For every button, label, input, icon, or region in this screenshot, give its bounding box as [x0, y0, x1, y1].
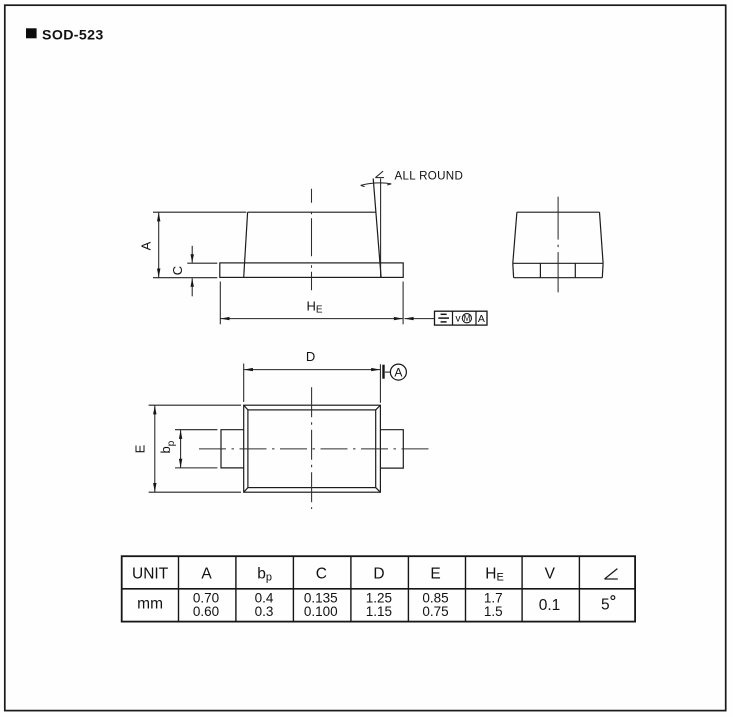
svg-text:0.100: 0.100 [304, 604, 338, 619]
svg-text:A: A [478, 313, 485, 325]
svg-text:A: A [394, 365, 402, 379]
svg-text:C: C [316, 566, 327, 583]
svg-text:0.75: 0.75 [422, 604, 448, 619]
svg-text:1.25: 1.25 [366, 590, 392, 605]
svg-text:M: M [464, 314, 471, 323]
svg-text:V: V [545, 566, 556, 583]
svg-text:0.4: 0.4 [255, 590, 274, 605]
svg-text:1.5: 1.5 [484, 604, 503, 619]
svg-text:0.135: 0.135 [304, 590, 338, 605]
svg-text:v: v [455, 313, 461, 325]
svg-text:mm: mm [137, 595, 163, 612]
svg-text:0.70: 0.70 [193, 590, 219, 605]
svg-text:A: A [201, 566, 212, 583]
svg-text:E: E [430, 566, 440, 583]
svg-text:UNIT: UNIT [132, 566, 169, 583]
svg-text:0.60: 0.60 [193, 604, 219, 619]
svg-text:1.15: 1.15 [366, 604, 392, 619]
svg-text:D: D [373, 566, 384, 583]
svg-text:C: C [170, 266, 185, 275]
svg-text:E: E [132, 444, 147, 453]
svg-text:A: A [138, 241, 153, 250]
svg-text:SOD-523: SOD-523 [42, 27, 104, 43]
svg-text:0.85: 0.85 [422, 590, 448, 605]
svg-text:0.3: 0.3 [255, 604, 274, 619]
svg-text:D: D [306, 349, 315, 364]
svg-text:0.1: 0.1 [539, 597, 561, 614]
svg-text:ALL ROUND: ALL ROUND [395, 170, 464, 183]
svg-text:5: 5 [601, 596, 610, 613]
svg-text:1.7: 1.7 [484, 590, 503, 605]
